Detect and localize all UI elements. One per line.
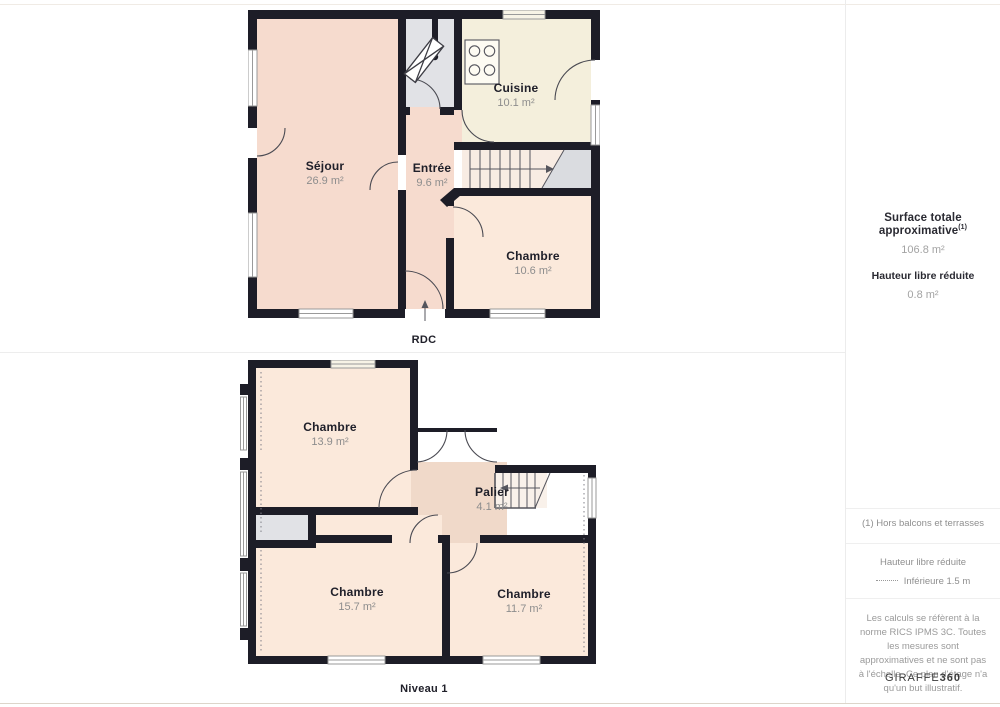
- surface-total-label: Surface totale approximative(1): [846, 212, 1000, 237]
- room-label-sejour: Séjour 26.9 m²: [306, 159, 345, 189]
- room-area: 26.9 m²: [306, 175, 345, 189]
- room-area: 13.9 m²: [303, 436, 356, 450]
- stove-icon: [465, 40, 499, 84]
- room-label-cuisine: Cuisine 10.1 m²: [494, 81, 539, 111]
- surface-summary: Surface totale approximative(1) 106.8 m²…: [846, 212, 1000, 301]
- legend-item-text: Inférieure 1.5 m: [904, 576, 971, 587]
- room-area: 4.1 m²: [475, 501, 509, 515]
- reduced-height-label: Hauteur libre réduite: [846, 270, 1000, 282]
- info-sidebar: Surface totale approximative(1) 106.8 m²…: [846, 0, 1000, 703]
- room-area: 10.6 m²: [506, 265, 559, 279]
- room-area: 9.6 m²: [413, 177, 452, 191]
- dotted-line-sample-icon: [876, 580, 898, 582]
- niveau1-floorplan: Chambre 13.9 m² Palier 4.1 m² Chambre 15…: [240, 360, 608, 672]
- niveau1-floorplan-drawing: [240, 360, 608, 672]
- surface-total-text: Surface totale approximative: [879, 212, 962, 237]
- room-name: Entrée: [413, 161, 452, 176]
- room-area: 11.7 m²: [497, 603, 550, 617]
- niveau1-room-fills: [256, 368, 596, 664]
- room-area: 10.1 m²: [494, 97, 539, 111]
- legend-item: Inférieure 1.5 m: [852, 576, 994, 587]
- room-label-entree: Entrée 9.6 m²: [413, 161, 452, 191]
- footnote-text: (1) Hors balcons et terrasses: [852, 518, 994, 529]
- brand-logo: GIRAFFE360: [846, 672, 1000, 684]
- floorplan-page: { "floors": [ { "label": "RDC", "rooms":…: [0, 0, 1000, 707]
- room-name: Chambre: [497, 587, 550, 602]
- room-label-chambre-139: Chambre 13.9 m²: [303, 420, 356, 450]
- surface-total-value: 106.8 m²: [846, 244, 1000, 256]
- room-name: Chambre: [330, 585, 383, 600]
- sidebar-section-divider: [846, 543, 1000, 544]
- floor-label-rdc: RDC: [248, 334, 600, 346]
- room-label-chambre-157: Chambre 15.7 m²: [330, 585, 383, 615]
- reduced-height-value: 0.8 m²: [846, 289, 1000, 301]
- sidebar-section-divider: [846, 508, 1000, 509]
- room-area: 15.7 m²: [330, 601, 383, 615]
- room-name: Palier: [475, 485, 509, 500]
- room-name: Séjour: [306, 159, 345, 174]
- bottom-border-line: [0, 703, 1000, 704]
- room-name: Cuisine: [494, 81, 539, 96]
- legend-title: Hauteur libre réduite: [852, 557, 994, 568]
- brand-name-normal: GIRAFFE: [885, 672, 940, 684]
- room-name: Chambre: [506, 249, 559, 264]
- brand-name-bold: 360: [940, 672, 961, 684]
- sidebar-section-divider: [846, 598, 1000, 599]
- rdc-floorplan: Séjour 26.9 m² Entrée 9.6 m² Cuisine 10.…: [248, 10, 600, 322]
- room-label-chambre-117: Chambre 11.7 m²: [497, 587, 550, 617]
- surface-footnote-marker: (1): [958, 224, 967, 231]
- room-label-palier: Palier 4.1 m²: [475, 485, 509, 515]
- room-label-chambre-rdc: Chambre 10.6 m²: [506, 249, 559, 279]
- floor-section-divider: [0, 352, 845, 353]
- floor-label-niveau1: Niveau 1: [240, 683, 608, 695]
- room-name: Chambre: [303, 420, 356, 435]
